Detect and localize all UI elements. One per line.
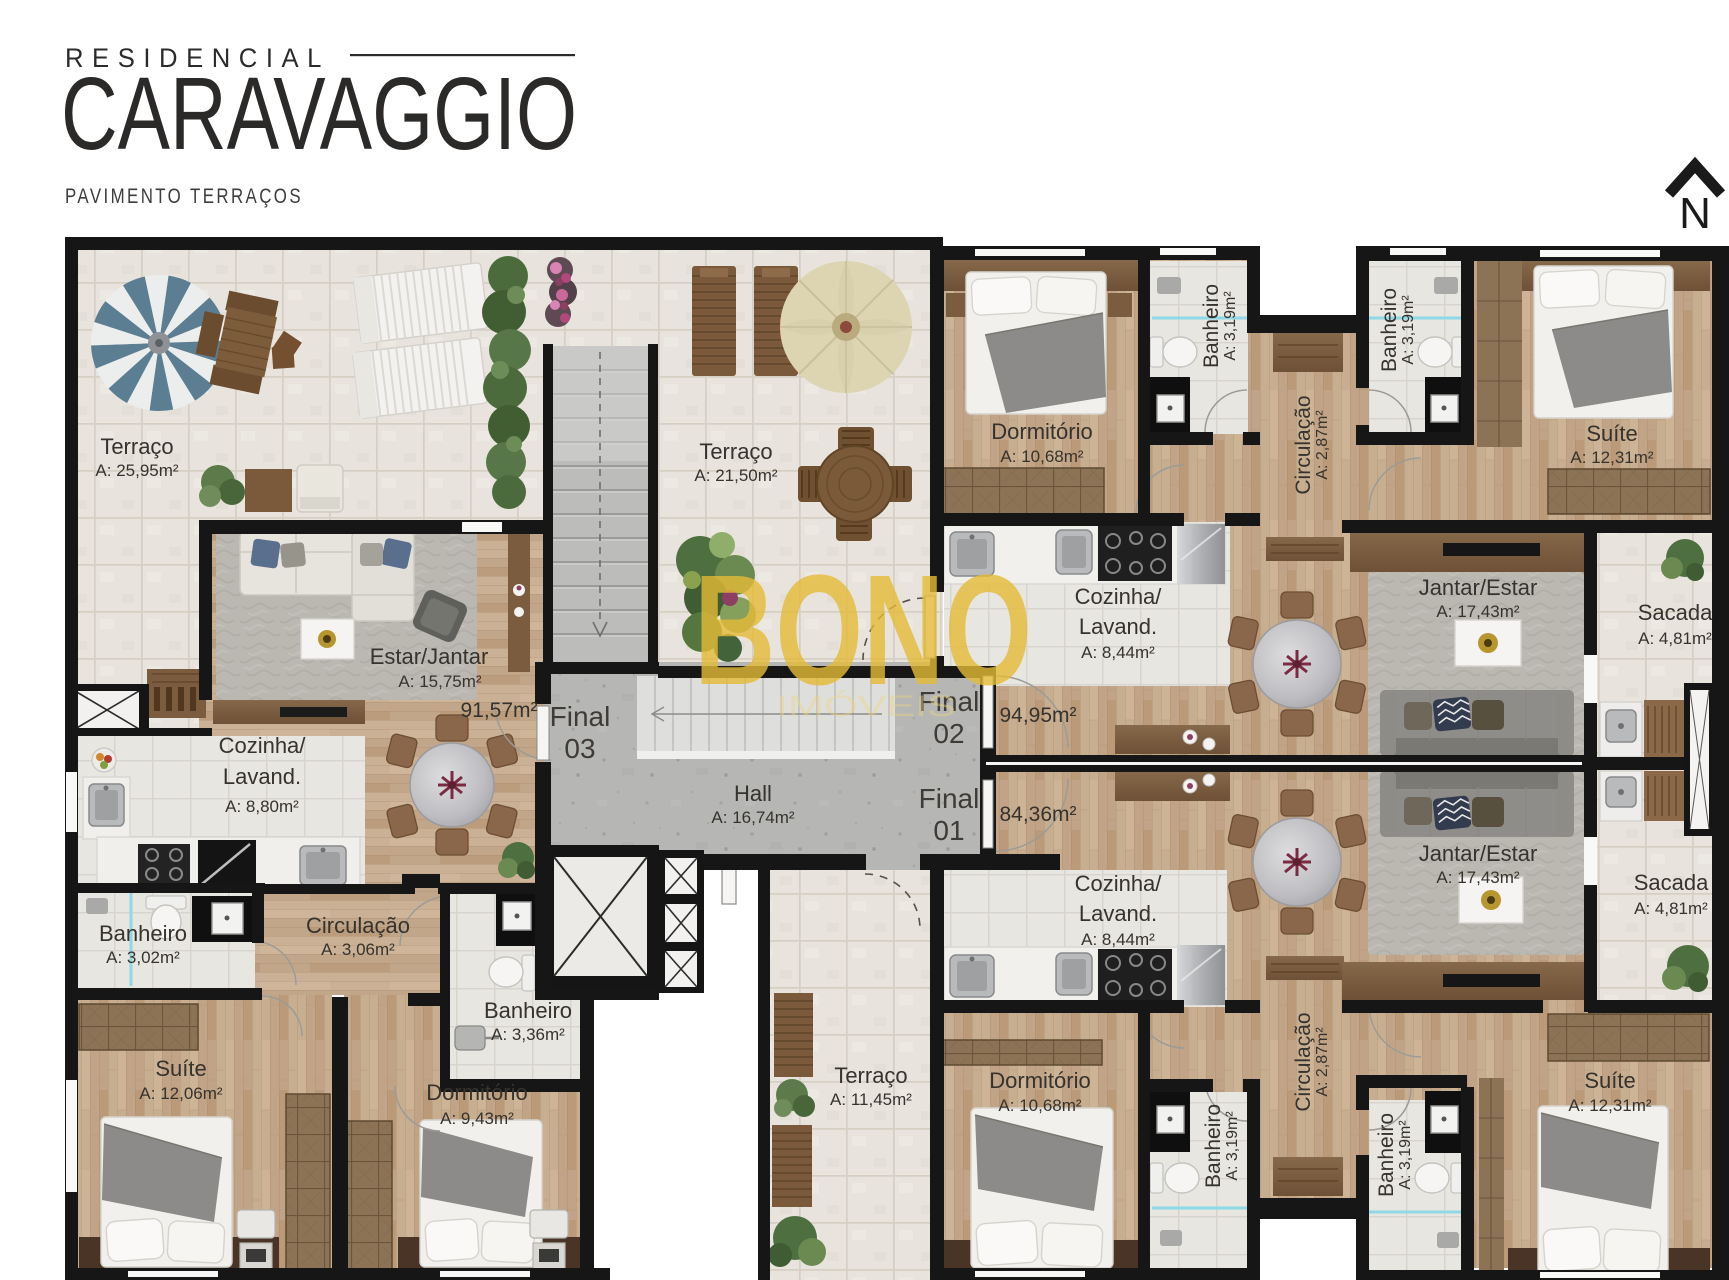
svg-text:IMÓVEIS: IMÓVEIS: [776, 690, 956, 723]
svg-text:A: 3,06m²: A: 3,06m²: [321, 940, 395, 959]
svg-text:N: N: [1679, 189, 1711, 238]
svg-text:A: 4,81m²: A: 4,81m²: [1638, 629, 1712, 648]
svg-text:84,36m²: 84,36m²: [999, 803, 1076, 826]
svg-text:Suíte: Suíte: [155, 1056, 206, 1081]
svg-text:Banheiro: Banheiro: [484, 998, 572, 1023]
svg-text:Cozinha/: Cozinha/: [1075, 871, 1163, 896]
svg-text:A: 3,19m²: A: 3,19m²: [1224, 1111, 1241, 1181]
svg-text:A: 3,19m²: A: 3,19m²: [1397, 1120, 1414, 1190]
svg-text:A: 21,50m²: A: 21,50m²: [694, 466, 777, 485]
svg-text:A: 11,45m²: A: 11,45m²: [830, 1090, 912, 1109]
svg-text:A: 10,68m²: A: 10,68m²: [1000, 447, 1083, 466]
svg-text:A: 3,19m²: A: 3,19m²: [1222, 291, 1239, 361]
svg-text:91,57m²: 91,57m²: [460, 699, 537, 722]
svg-text:A: 12,31m²: A: 12,31m²: [1568, 1096, 1651, 1115]
svg-text:Banheiro: Banheiro: [1200, 284, 1223, 368]
svg-text:Terraço: Terraço: [834, 1063, 907, 1088]
svg-text:CARAVAGGIO: CARAVAGGIO: [61, 56, 577, 171]
svg-text:Banheiro: Banheiro: [1378, 288, 1401, 372]
svg-text:Hall: Hall: [734, 781, 772, 806]
svg-text:A: 25,95m²: A: 25,95m²: [95, 461, 178, 480]
svg-text:A: 2,87m²: A: 2,87m²: [1314, 410, 1331, 480]
svg-text:A: 10,68m²: A: 10,68m²: [998, 1096, 1081, 1115]
svg-text:Jantar/Estar: Jantar/Estar: [1419, 575, 1538, 600]
svg-text:Dormitório: Dormitório: [989, 1068, 1090, 1093]
svg-text:Terraço: Terraço: [699, 439, 772, 464]
svg-text:Circulação: Circulação: [306, 913, 410, 938]
svg-text:PAVIMENTO TERRAÇOS: PAVIMENTO TERRAÇOS: [65, 185, 303, 208]
svg-text:01: 01: [933, 815, 964, 846]
svg-text:A: 16,74m²: A: 16,74m²: [711, 808, 794, 827]
svg-text:Sacada: Sacada: [1638, 600, 1713, 625]
svg-text:Cozinha/: Cozinha/: [1075, 584, 1163, 609]
svg-text:Lavand.: Lavand.: [223, 764, 301, 789]
svg-text:Dormitório: Dormitório: [426, 1080, 527, 1105]
svg-text:Jantar/Estar: Jantar/Estar: [1419, 841, 1538, 866]
svg-text:03: 03: [564, 733, 595, 764]
svg-text:Lavand.: Lavand.: [1079, 901, 1157, 926]
svg-text:A: 9,43m²: A: 9,43m²: [440, 1109, 514, 1128]
svg-text:A: 8,80m²: A: 8,80m²: [225, 797, 299, 816]
svg-text:Cozinha/: Cozinha/: [219, 733, 307, 758]
svg-text:A: 17,43m²: A: 17,43m²: [1436, 868, 1519, 887]
svg-text:A: 2,87m²: A: 2,87m²: [1314, 1027, 1331, 1097]
svg-text:Circulação: Circulação: [1292, 1012, 1315, 1111]
svg-text:Circulação: Circulação: [1292, 395, 1315, 494]
svg-text:Suíte: Suíte: [1584, 1068, 1635, 1093]
svg-text:A: 12,06m²: A: 12,06m²: [139, 1084, 222, 1103]
svg-text:A: 4,81m²: A: 4,81m²: [1634, 899, 1708, 918]
svg-text:Sacada: Sacada: [1634, 870, 1709, 895]
svg-text:Banheiro: Banheiro: [1375, 1113, 1398, 1197]
svg-text:A: 8,44m²: A: 8,44m²: [1081, 643, 1155, 662]
svg-text:A: 3,36m²: A: 3,36m²: [491, 1025, 565, 1044]
svg-text:A: 17,43m²: A: 17,43m²: [1436, 602, 1519, 621]
svg-text:Dormitório: Dormitório: [991, 419, 1092, 444]
svg-text:Final: Final: [550, 701, 611, 732]
svg-text:Suíte: Suíte: [1586, 421, 1637, 446]
svg-text:A: 8,44m²: A: 8,44m²: [1081, 930, 1155, 949]
svg-text:Final: Final: [919, 783, 980, 814]
svg-text:Terraço: Terraço: [100, 434, 173, 459]
svg-text:A: 15,75m²: A: 15,75m²: [398, 672, 481, 691]
svg-text:Banheiro: Banheiro: [99, 921, 187, 946]
svg-text:Estar/Jantar: Estar/Jantar: [370, 644, 489, 669]
svg-text:A: 3,02m²: A: 3,02m²: [106, 948, 180, 967]
svg-text:Lavand.: Lavand.: [1079, 614, 1157, 639]
svg-text:Banheiro: Banheiro: [1202, 1104, 1225, 1188]
svg-text:A: 3,19m²: A: 3,19m²: [1400, 295, 1417, 365]
svg-text:A: 12,31m²: A: 12,31m²: [1570, 448, 1653, 467]
